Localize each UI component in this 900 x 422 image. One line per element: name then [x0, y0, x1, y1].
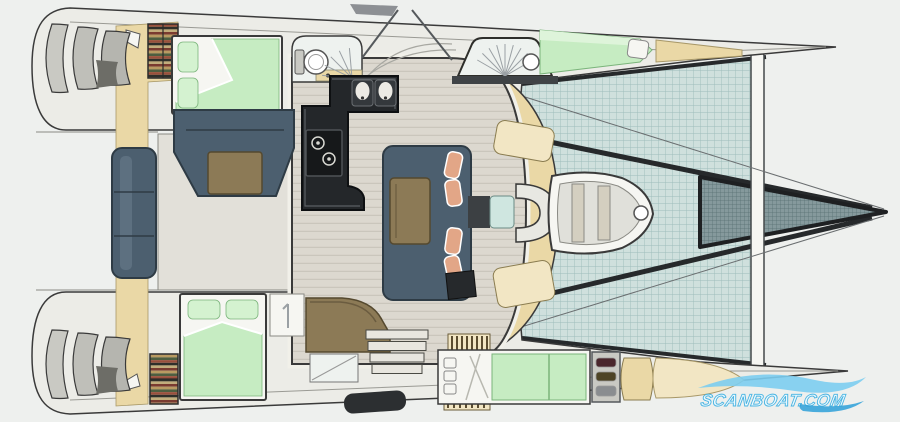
stove [306, 130, 342, 176]
stove-top [306, 130, 342, 176]
pillow [188, 300, 220, 319]
drawer [596, 386, 616, 396]
forward-crossbeam [751, 52, 764, 370]
drawer-locker [592, 352, 620, 402]
sink-drain [361, 96, 364, 99]
foredeck-doorway [468, 196, 490, 228]
burner-center [316, 141, 320, 145]
pillow [226, 300, 258, 319]
drawer [596, 372, 616, 381]
step-rung [444, 384, 456, 394]
steering-wheel [523, 54, 539, 70]
guest-bed-aft [180, 294, 266, 400]
step-rung [444, 371, 456, 381]
cabin-door-panel [270, 294, 304, 336]
step-rung [444, 358, 456, 368]
dinghy-bench [572, 184, 584, 242]
port-transom-steps [46, 24, 130, 93]
stair-tread [372, 365, 422, 374]
duvet [184, 322, 262, 396]
helm-dash-bar [452, 76, 558, 84]
owner-bed [172, 36, 282, 114]
step-shadow [96, 60, 118, 88]
salon-settee [383, 146, 476, 300]
pillow [178, 42, 198, 72]
toilet-tank [295, 50, 304, 74]
burner-center [327, 157, 331, 161]
bow-stowage [621, 358, 653, 400]
stair-tread [368, 342, 426, 351]
dinghy-bench [598, 186, 610, 240]
cockpit-table [490, 196, 514, 228]
step-shadow [96, 366, 118, 394]
sink-drain [384, 96, 387, 99]
stair-tread [366, 330, 428, 339]
starboard-transom-steps [46, 330, 130, 399]
toilet-bowl [304, 50, 328, 74]
drawer [596, 358, 616, 367]
pillow [178, 78, 198, 108]
throw-pillow [444, 227, 462, 255]
stair-tread [370, 353, 424, 362]
floor-plan-canvas: SCANBOAT.COM [0, 0, 900, 422]
tv-cabinet [446, 271, 477, 300]
throw-pillow [444, 179, 462, 207]
aft-bench-cushion [120, 156, 132, 270]
galley-sink [352, 80, 373, 106]
pillow [627, 39, 649, 60]
owner-sofa [174, 110, 294, 196]
galley-sink [375, 80, 396, 106]
dinghy-motor [634, 206, 648, 220]
duvet [492, 354, 586, 400]
catamaran-floor-plan: SCANBOAT.COM [0, 0, 900, 422]
aft-bench [112, 148, 156, 278]
cabin-table [208, 152, 262, 194]
